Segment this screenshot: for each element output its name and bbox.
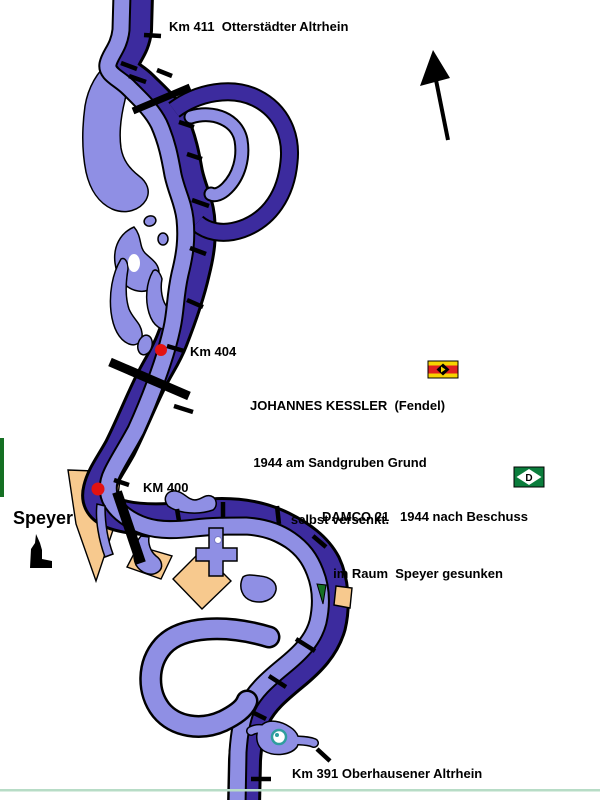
river-map: D Km 411 Otterstädter Altrhein Km 404 JO…	[0, 0, 600, 800]
city-label-speyer: Speyer	[13, 509, 73, 528]
kessler-line1: JOHANNES KESSLER (Fendel)	[250, 396, 430, 415]
south-pocket	[241, 575, 276, 602]
green-edge-strip	[0, 438, 4, 497]
km-tick	[157, 70, 172, 76]
wetland-island	[128, 254, 140, 272]
pond-island-ring	[272, 730, 286, 744]
km-tick	[177, 509, 179, 521]
km-400-label: KM 400	[143, 481, 189, 495]
damco-flag-letter: D	[525, 473, 532, 484]
wreck-position-dot-km400	[92, 483, 105, 496]
km-411-label: Km 411 Otterstädter Altrhein	[169, 20, 348, 34]
km-404-label: Km 404	[190, 345, 236, 359]
pond	[158, 233, 168, 245]
oberhausener-altrhein	[151, 629, 269, 727]
speyer-cathedral-icon	[30, 534, 52, 568]
km-tick	[174, 406, 193, 412]
km-tick	[144, 35, 161, 36]
damco-line1: DAMCO 21 1944 nach Beschuss	[322, 507, 514, 526]
north-arrow-icon	[420, 50, 450, 140]
pond	[143, 214, 158, 228]
map-bottom-border	[0, 789, 600, 792]
damco-house-flag: D	[514, 467, 544, 487]
wreck-position-dot-km404	[155, 344, 167, 356]
km-tick	[317, 749, 330, 761]
channel-island	[215, 537, 222, 544]
damco-line2: im Raum Speyer gesunken	[322, 564, 514, 583]
km-391-label: Km 391 Oberhausener Altrhein	[292, 767, 482, 781]
fendel-house-flag	[428, 361, 458, 378]
pond-island-dot	[275, 733, 279, 737]
wreck-annotation-damco: DAMCO 21 1944 nach Beschuss im Raum Spey…	[322, 469, 514, 621]
